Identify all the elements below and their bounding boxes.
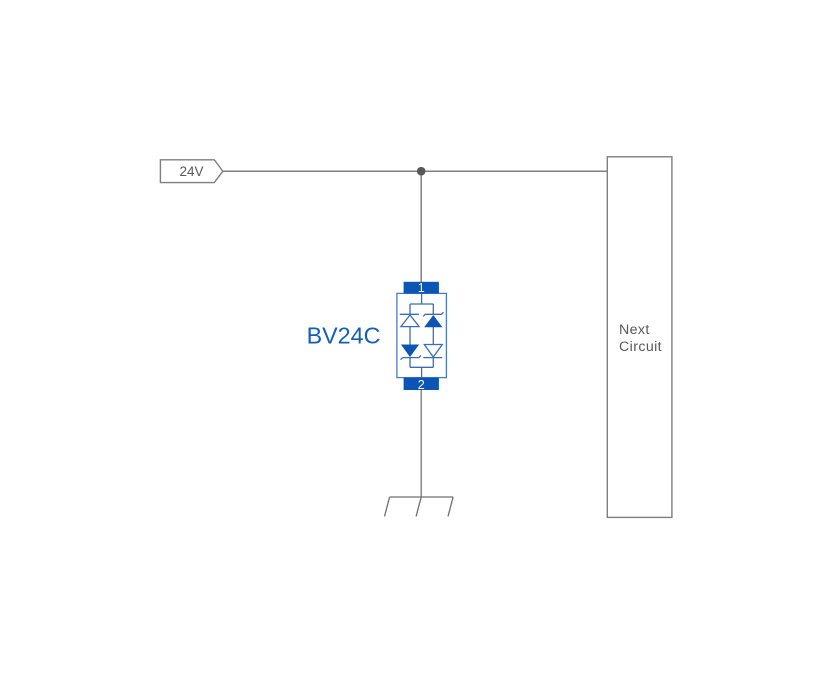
svg-text:1: 1: [418, 281, 425, 295]
svg-text:Next: Next: [619, 322, 650, 338]
svg-text:Circuit: Circuit: [619, 339, 662, 355]
svg-text:24V: 24V: [179, 164, 203, 179]
svg-text:2: 2: [418, 378, 425, 392]
svg-text:BV24C: BV24C: [307, 322, 381, 348]
